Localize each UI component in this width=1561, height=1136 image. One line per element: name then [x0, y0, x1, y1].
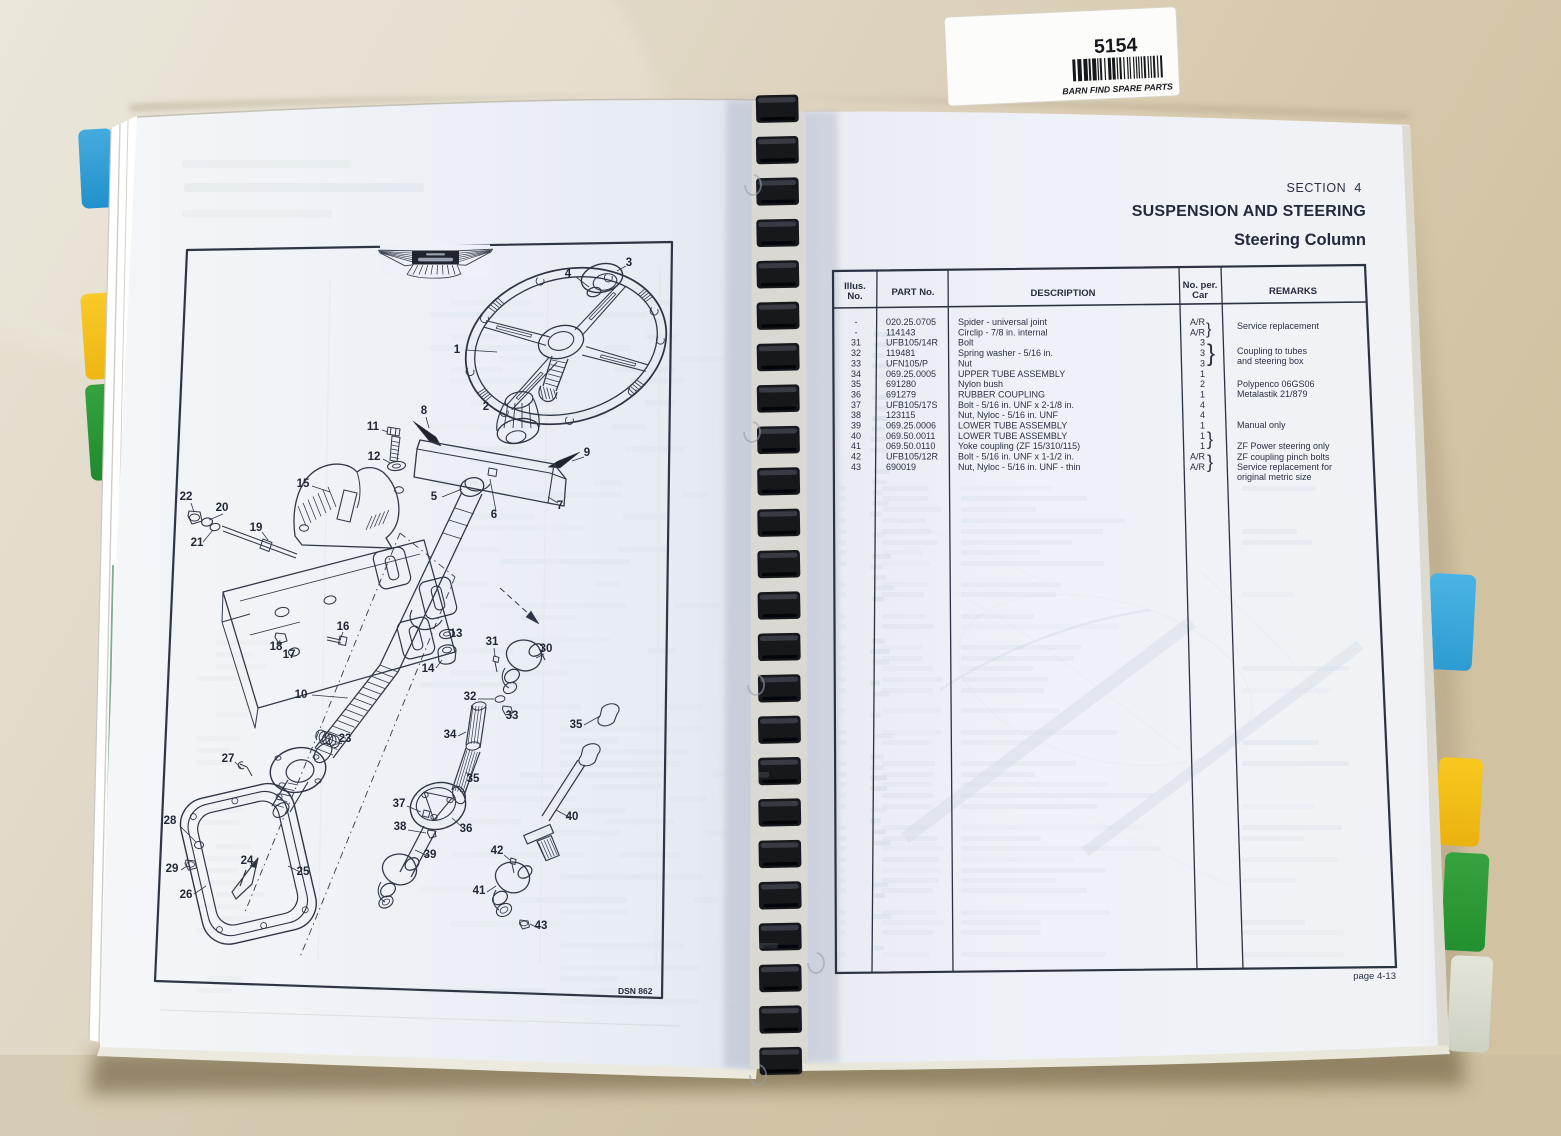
svg-text:Metalastik 21/879: Metalastik 21/879 [1237, 389, 1308, 399]
svg-text:114143: 114143 [886, 327, 915, 337]
svg-text:Circlip - 7/8 in. internal: Circlip - 7/8 in. internal [958, 327, 1048, 337]
svg-text:43: 43 [535, 920, 548, 932]
svg-text:original metric size: original metric size [1237, 472, 1312, 482]
svg-text:31: 31 [486, 636, 499, 648]
svg-text:Bolt: Bolt [958, 338, 974, 348]
svg-text:34: 34 [851, 369, 861, 379]
svg-text:Yoke coupling (ZF 15/310/115): Yoke coupling (ZF 15/310/115) [958, 441, 1080, 451]
svg-text:ZF coupling pinch bolts: ZF coupling pinch bolts [1237, 452, 1330, 462]
svg-text:28: 28 [164, 815, 177, 827]
svg-text:}: } [1207, 452, 1213, 472]
svg-text:2: 2 [483, 401, 489, 413]
svg-text:}: } [1206, 321, 1212, 338]
svg-text:32: 32 [464, 691, 477, 703]
svg-text:1: 1 [1200, 369, 1205, 379]
svg-text:3: 3 [1200, 348, 1205, 358]
svg-text:40: 40 [566, 811, 579, 823]
svg-text:691280: 691280 [886, 379, 916, 389]
svg-text:Polypenco 06GS06: Polypenco 06GS06 [1237, 379, 1315, 389]
svg-text:41: 41 [851, 441, 861, 451]
svg-text:5: 5 [431, 491, 438, 503]
svg-text:020.25.0705: 020.25.0705 [886, 317, 936, 327]
svg-text:41: 41 [473, 885, 486, 897]
svg-text:069.25.0005: 069.25.0005 [886, 369, 936, 379]
svg-text:}: } [1207, 429, 1213, 449]
svg-text:PART No.: PART No. [891, 287, 934, 298]
svg-text:-: - [855, 317, 858, 327]
svg-text:Manual only: Manual only [1237, 420, 1286, 430]
svg-text:4: 4 [565, 268, 572, 280]
svg-text:33: 33 [851, 358, 861, 368]
svg-text:A/R: A/R [1190, 317, 1206, 327]
svg-text:32: 32 [851, 348, 861, 358]
svg-text:Service replacement: Service replacement [1237, 321, 1320, 331]
svg-text:3: 3 [1200, 338, 1205, 348]
svg-text:UFB105/12R: UFB105/12R [886, 452, 939, 462]
svg-text:Steering Column: Steering Column [1234, 231, 1366, 249]
svg-text:UFN105/P: UFN105/P [886, 358, 928, 368]
svg-text:Car: Car [1192, 290, 1208, 301]
svg-text:Spider - universal joint: Spider - universal joint [958, 317, 1048, 327]
svg-text:UFB105/14R: UFB105/14R [886, 338, 939, 348]
svg-text:DESCRIPTION: DESCRIPTION [1031, 288, 1096, 299]
svg-text:LOWER TUBE ASSEMBLY: LOWER TUBE ASSEMBLY [958, 431, 1067, 441]
svg-text:13: 13 [450, 628, 463, 640]
svg-text:Bolt - 5/16 in. UNF x 2-1/8 in: Bolt - 5/16 in. UNF x 2-1/8 in. [958, 400, 1074, 410]
svg-text:35: 35 [851, 379, 861, 389]
svg-text:40: 40 [851, 431, 861, 441]
svg-text:A/R: A/R [1190, 327, 1206, 337]
svg-text:DSN 862: DSN 862 [618, 986, 653, 996]
svg-text:}: } [1207, 340, 1215, 367]
svg-text:25: 25 [297, 866, 310, 878]
svg-text:UPPER TUBE ASSEMBLY: UPPER TUBE ASSEMBLY [958, 369, 1065, 379]
svg-text:15: 15 [297, 478, 310, 490]
svg-text:29: 29 [166, 863, 179, 875]
svg-text:19: 19 [250, 522, 263, 534]
svg-text:1: 1 [1200, 389, 1205, 399]
svg-text:8: 8 [421, 405, 428, 417]
svg-text:SECTION 4: SECTION 4 [1287, 181, 1362, 195]
svg-text:36: 36 [851, 389, 861, 399]
svg-text:27: 27 [222, 753, 235, 765]
svg-text:20: 20 [216, 502, 229, 514]
svg-text:1: 1 [1200, 421, 1205, 431]
svg-text:A/R: A/R [1190, 452, 1206, 462]
svg-text:37: 37 [393, 798, 406, 810]
svg-text:22: 22 [180, 491, 193, 503]
svg-text:34: 34 [444, 729, 457, 741]
svg-text:10: 10 [295, 689, 308, 701]
svg-text:Service replacement for: Service replacement for [1237, 462, 1332, 472]
svg-text:38: 38 [394, 821, 407, 833]
svg-text:26: 26 [180, 889, 193, 901]
svg-text:Nut, Nyloc - 5/16 in. UNF - th: Nut, Nyloc - 5/16 in. UNF - thin [958, 462, 1081, 472]
svg-text:069.50.0110: 069.50.0110 [886, 441, 935, 451]
svg-text:42: 42 [491, 845, 504, 857]
svg-text:No.: No. [847, 291, 862, 302]
svg-text:1: 1 [454, 344, 461, 356]
svg-text:069.50.0011: 069.50.0011 [886, 431, 935, 441]
svg-text:42: 42 [851, 452, 861, 462]
svg-text:11: 11 [367, 421, 380, 433]
svg-text:24: 24 [241, 855, 254, 867]
svg-text:LOWER TUBE ASSEMBLY: LOWER TUBE ASSEMBLY [958, 421, 1067, 431]
svg-text:691279: 691279 [886, 389, 916, 399]
svg-text:A/R: A/R [1190, 462, 1206, 472]
svg-text:Coupling to tubes: Coupling to tubes [1237, 346, 1308, 356]
svg-text:30: 30 [540, 643, 553, 655]
svg-text:SUSPENSION AND STEERING: SUSPENSION AND STEERING [1132, 203, 1366, 220]
svg-text:36: 36 [460, 823, 473, 835]
svg-text:5154: 5154 [1093, 34, 1137, 58]
svg-text:123115: 123115 [886, 410, 915, 420]
svg-text:Nut: Nut [958, 358, 973, 368]
svg-text:38: 38 [851, 410, 861, 420]
svg-text:1: 1 [1200, 441, 1205, 451]
svg-text:3: 3 [626, 257, 632, 269]
svg-text:18: 18 [270, 641, 283, 653]
svg-text:35: 35 [467, 773, 480, 785]
svg-text:37: 37 [851, 400, 861, 410]
svg-text:119481: 119481 [886, 348, 915, 358]
svg-text:ZF Power steering only: ZF Power steering only [1237, 441, 1330, 451]
svg-text:690019: 690019 [886, 462, 916, 472]
svg-text:Nylon bush: Nylon bush [958, 379, 1003, 389]
svg-text:069.25.0006: 069.25.0006 [886, 421, 936, 431]
svg-text:-: - [855, 327, 858, 337]
svg-text:12: 12 [368, 451, 381, 463]
svg-text:2: 2 [1200, 379, 1205, 389]
svg-text:and steering box: and steering box [1237, 356, 1304, 366]
svg-text:35: 35 [570, 719, 583, 731]
svg-text:39: 39 [851, 421, 861, 431]
svg-text:31: 31 [851, 338, 861, 348]
svg-text:REMARKS: REMARKS [1269, 286, 1317, 297]
svg-text:43: 43 [851, 462, 861, 472]
svg-text:7: 7 [557, 500, 563, 512]
svg-text:16: 16 [337, 621, 350, 633]
svg-text:9: 9 [584, 447, 590, 459]
svg-text:4: 4 [1200, 410, 1205, 420]
svg-text:UFB105/17S: UFB105/17S [886, 400, 938, 410]
svg-text:21: 21 [191, 537, 204, 549]
svg-text:page 4-13: page 4-13 [1353, 971, 1396, 982]
svg-text:3: 3 [1200, 358, 1205, 368]
svg-text:14: 14 [422, 663, 435, 675]
svg-text:1: 1 [1200, 431, 1205, 441]
svg-text:Spring washer - 5/16 in.: Spring washer - 5/16 in. [958, 348, 1053, 358]
svg-text:Nut, Nyloc - 5/16 in. UNF: Nut, Nyloc - 5/16 in. UNF [958, 410, 1059, 420]
svg-text:RUBBER COUPLING: RUBBER COUPLING [958, 389, 1045, 399]
svg-text:Bolt - 5/16 in. UNF x 1-1/2 in: Bolt - 5/16 in. UNF x 1-1/2 in. [958, 452, 1074, 462]
svg-text:4: 4 [1200, 400, 1205, 410]
